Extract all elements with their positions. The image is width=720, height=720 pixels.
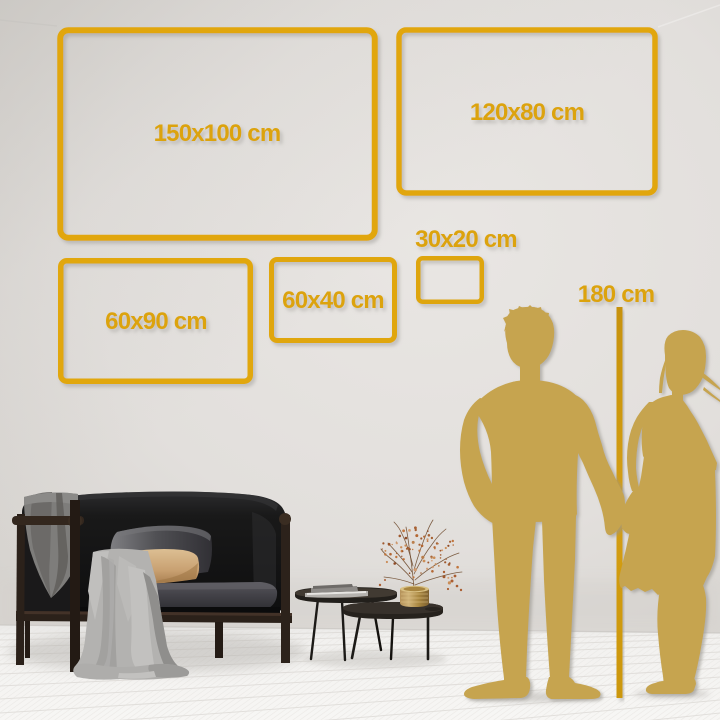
svg-text:180 cm: 180 cm [578, 281, 655, 308]
svg-text:150x100 cm: 150x100 cm [154, 120, 281, 147]
svg-text:60x90 cm: 60x90 cm [105, 308, 207, 335]
svg-text:120x80 cm: 120x80 cm [470, 99, 584, 126]
svg-text:30x20 cm: 30x20 cm [415, 226, 517, 253]
svg-text:60x40 cm: 60x40 cm [282, 287, 384, 314]
